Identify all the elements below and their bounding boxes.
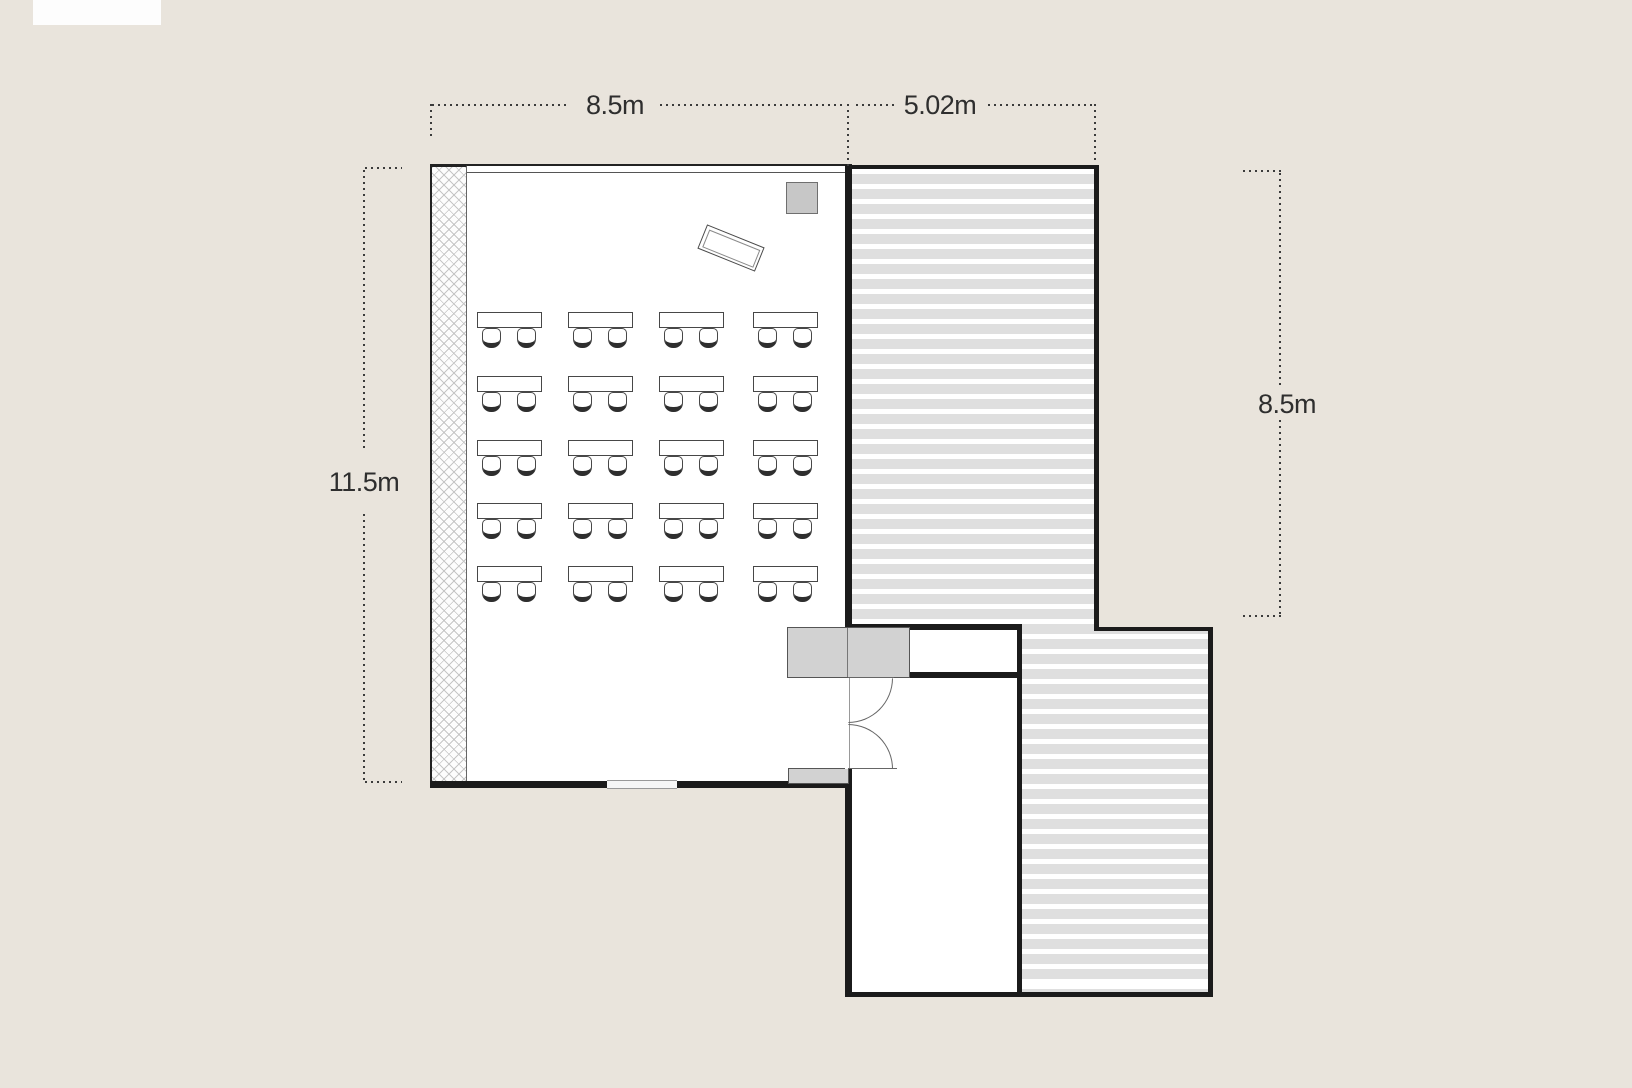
student-desk	[568, 376, 633, 392]
chair	[482, 582, 501, 602]
student-desk-area	[0, 0, 1632, 1088]
chair	[482, 392, 501, 412]
chair	[517, 582, 536, 602]
chair	[482, 328, 501, 348]
chair	[573, 519, 592, 539]
student-desk	[477, 376, 542, 392]
chair	[758, 392, 777, 412]
chair	[793, 456, 812, 476]
chair	[517, 392, 536, 412]
vestibule-notch-wall	[910, 672, 1020, 678]
dim-left-tick-bottom	[365, 781, 402, 783]
dim-right-seg1	[1279, 173, 1281, 386]
chair	[793, 582, 812, 602]
chair	[793, 392, 812, 412]
chair	[664, 519, 683, 539]
dim-top-main-seg2	[660, 104, 845, 106]
student-desk	[659, 312, 724, 328]
student-desk	[568, 440, 633, 456]
student-desk	[477, 440, 542, 456]
door-leaf-bottom	[848, 768, 897, 769]
dim-top-tick-right	[1094, 104, 1096, 162]
dim-right-label: 8.5m	[1237, 389, 1337, 420]
chair	[608, 519, 627, 539]
chair	[573, 456, 592, 476]
chair	[664, 456, 683, 476]
student-desk	[753, 312, 818, 328]
door-side-cabinet	[787, 627, 910, 678]
bottom-exterior-wall	[845, 992, 1213, 997]
chair	[664, 582, 683, 602]
chair	[758, 328, 777, 348]
student-desk	[477, 566, 542, 582]
floor-plan-canvas: 8.5m 5.02m 11.5m 8.5m	[0, 0, 1632, 1088]
vestibule-right-wall	[1017, 624, 1022, 997]
student-desk	[753, 566, 818, 582]
dim-top-terrace-seg2	[988, 104, 1092, 106]
chair	[608, 392, 627, 412]
chair	[664, 392, 683, 412]
chair	[517, 519, 536, 539]
student-desk	[753, 503, 818, 519]
chair	[517, 328, 536, 348]
student-desk	[753, 376, 818, 392]
dim-left-tick-top	[365, 167, 402, 169]
chair	[608, 582, 627, 602]
door-side-cabinet-wall-line	[847, 628, 848, 677]
chair	[573, 392, 592, 412]
chair	[482, 519, 501, 539]
chair	[664, 328, 683, 348]
chair	[573, 582, 592, 602]
chair	[758, 456, 777, 476]
chair	[699, 582, 718, 602]
chair	[758, 519, 777, 539]
chair	[608, 456, 627, 476]
dim-right-seg2	[1279, 420, 1281, 617]
dim-right-tick-bottom	[1243, 615, 1281, 617]
chair	[482, 456, 501, 476]
dim-left-label: 11.5m	[314, 467, 414, 498]
chair	[699, 328, 718, 348]
dim-top-main-label: 8.5m	[565, 90, 665, 121]
corner-cabinet	[788, 768, 849, 784]
dim-top-terrace-label: 5.02m	[890, 90, 990, 121]
dim-left-seg1	[363, 170, 365, 450]
dim-right-tick-top	[1243, 170, 1281, 172]
dim-top-tick-left	[430, 104, 432, 140]
dim-top-tick-mid	[847, 104, 849, 168]
chair	[793, 328, 812, 348]
chair	[699, 456, 718, 476]
dim-left-seg2	[363, 514, 365, 782]
chair	[699, 392, 718, 412]
student-desk	[477, 503, 542, 519]
chair	[517, 456, 536, 476]
student-desk	[568, 503, 633, 519]
student-desk	[568, 566, 633, 582]
student-desk	[753, 440, 818, 456]
chair	[608, 328, 627, 348]
dim-top-main-seg1	[432, 104, 570, 106]
student-desk	[568, 312, 633, 328]
student-desk	[659, 440, 724, 456]
student-desk	[659, 503, 724, 519]
student-desk	[659, 376, 724, 392]
student-desk	[659, 566, 724, 582]
chair	[758, 582, 777, 602]
chair	[573, 328, 592, 348]
chair	[793, 519, 812, 539]
student-desk	[477, 312, 542, 328]
chair	[699, 519, 718, 539]
